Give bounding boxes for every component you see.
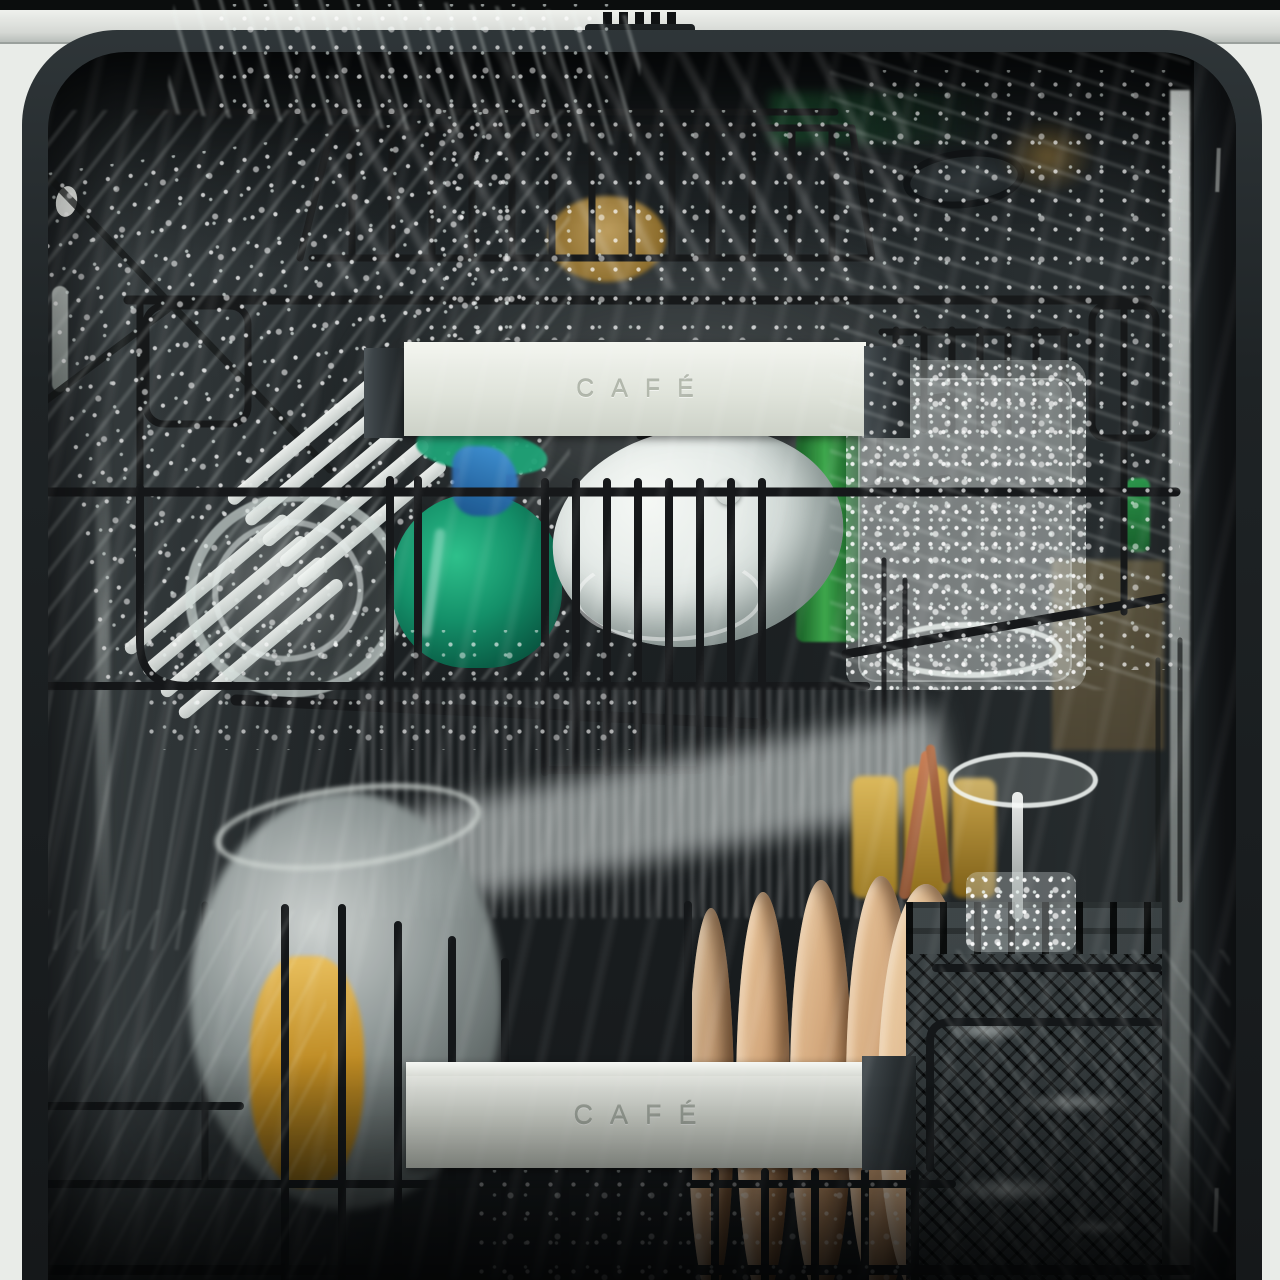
tub-interior: CAFÉ <box>0 0 1280 1280</box>
tub-vignette <box>0 30 1280 1280</box>
water-droplets-over-top-rim <box>210 4 610 114</box>
dishwasher-interior-photo: CAFÉ <box>0 0 1280 1280</box>
